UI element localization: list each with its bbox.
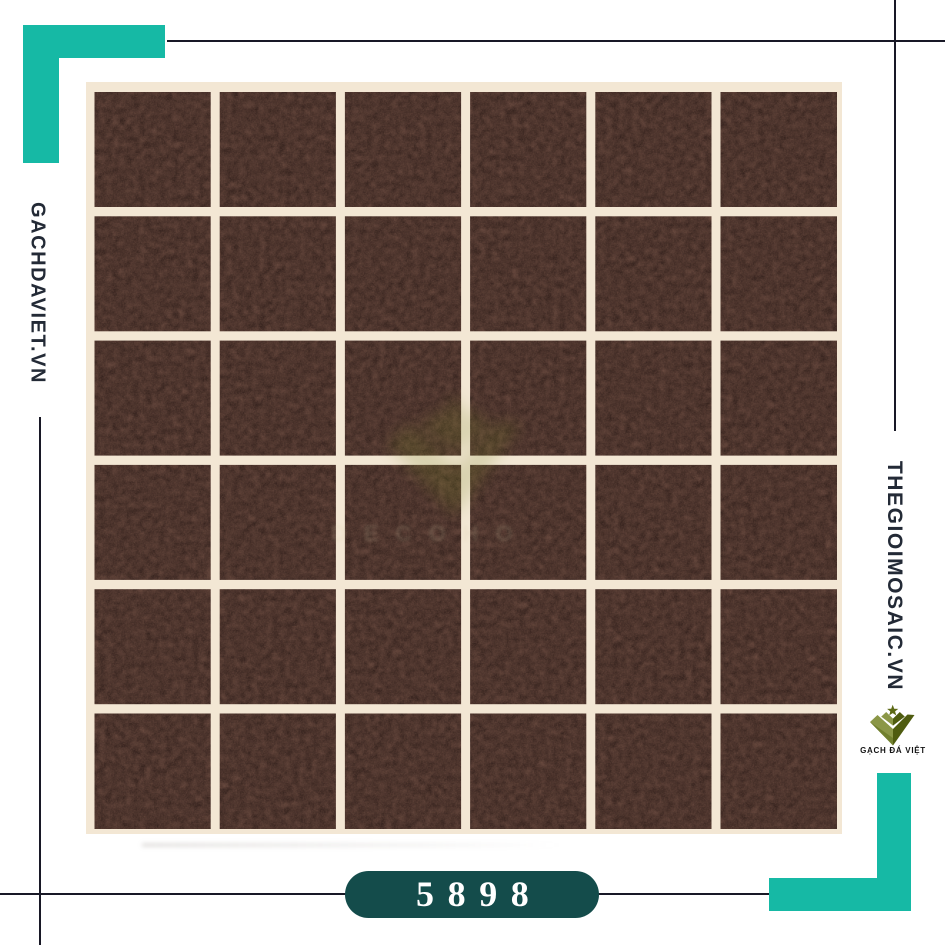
svg-text:DECOHO: DECOHO <box>331 521 530 546</box>
